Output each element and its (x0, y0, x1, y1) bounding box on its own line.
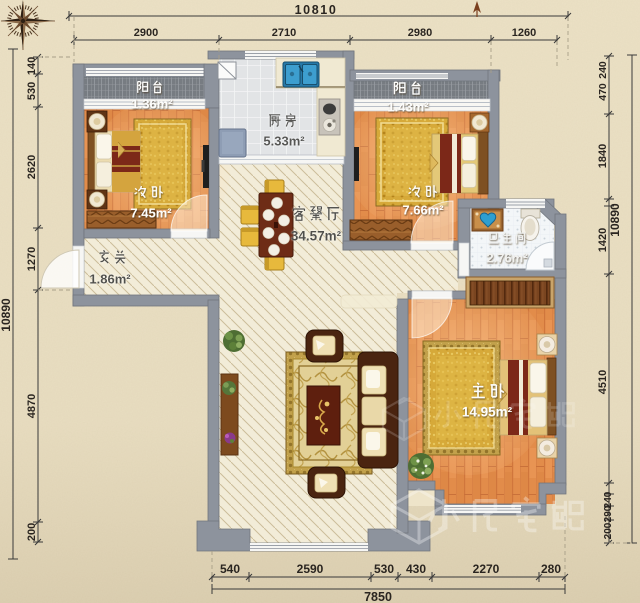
svg-text:10890: 10890 (608, 203, 622, 237)
svg-text:1.43m²: 1.43m² (387, 100, 429, 115)
svg-text:1.86m²: 1.86m² (89, 272, 131, 287)
svg-text:430: 430 (406, 562, 426, 576)
svg-text:10810: 10810 (295, 3, 338, 17)
svg-text:7850: 7850 (364, 590, 392, 603)
svg-text:2.76m²: 2.76m² (486, 251, 528, 266)
svg-text:1840: 1840 (597, 144, 609, 168)
svg-text:200: 200 (603, 522, 614, 539)
svg-text:10890: 10890 (0, 298, 13, 332)
svg-text:2980: 2980 (408, 27, 432, 39)
svg-text:540: 540 (220, 562, 240, 576)
svg-text:4510: 4510 (597, 370, 609, 394)
svg-text:1260: 1260 (512, 27, 536, 39)
svg-text:200: 200 (26, 523, 38, 541)
svg-text:470: 470 (597, 83, 609, 101)
svg-text:7.45m²: 7.45m² (130, 206, 172, 221)
svg-text:1.36m²: 1.36m² (131, 97, 173, 112)
svg-text:2270: 2270 (473, 562, 500, 576)
svg-text:2900: 2900 (134, 27, 158, 39)
svg-text:5.33m²: 5.33m² (263, 134, 305, 149)
svg-text:290: 290 (603, 505, 614, 522)
svg-text:280: 280 (541, 562, 561, 576)
svg-text:530: 530 (26, 82, 38, 100)
svg-text:1420: 1420 (597, 228, 609, 252)
svg-text:2590: 2590 (297, 562, 324, 576)
svg-text:7.66m²: 7.66m² (402, 203, 444, 218)
svg-text:34.57m²: 34.57m² (291, 229, 342, 244)
svg-text:240: 240 (597, 61, 609, 79)
svg-text:4870: 4870 (26, 394, 38, 418)
svg-text:140: 140 (26, 57, 38, 75)
svg-text:2710: 2710 (272, 27, 296, 39)
svg-text:1270: 1270 (26, 247, 38, 271)
svg-text:2620: 2620 (26, 155, 38, 179)
svg-text:530: 530 (374, 562, 394, 576)
